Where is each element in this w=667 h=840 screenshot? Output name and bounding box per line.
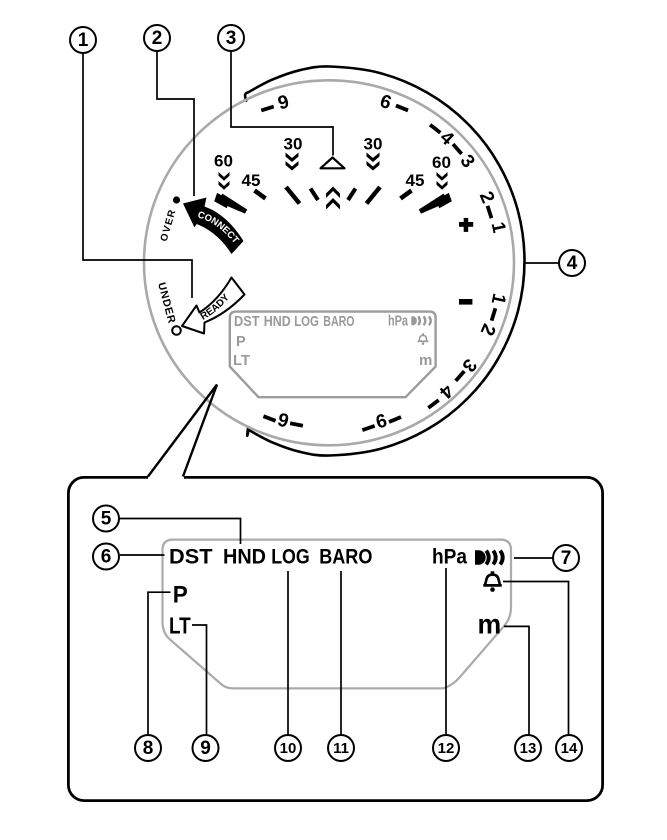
svg-text:2: 2 — [476, 321, 499, 339]
svg-text:6: 6 — [377, 91, 394, 114]
svg-text:BARO: BARO — [319, 545, 372, 569]
svg-text:6: 6 — [374, 410, 390, 433]
svg-text:11: 11 — [333, 740, 349, 757]
svg-text:hPa: hPa — [388, 314, 409, 330]
svg-text:UNDER: UNDER — [155, 281, 178, 325]
svg-text:LOG: LOG — [271, 545, 310, 569]
svg-text:30: 30 — [364, 135, 383, 154]
svg-text:7: 7 — [561, 548, 572, 569]
svg-text:DST: DST — [169, 545, 213, 569]
svg-text:30: 30 — [284, 135, 303, 154]
svg-text:2: 2 — [475, 189, 498, 207]
svg-text:10: 10 — [280, 740, 297, 757]
svg-text:45: 45 — [242, 171, 261, 190]
svg-text:HND: HND — [264, 313, 291, 330]
svg-text:12: 12 — [438, 740, 455, 757]
svg-text:14: 14 — [561, 740, 578, 757]
svg-text:9: 9 — [276, 91, 292, 114]
svg-text:4: 4 — [567, 253, 578, 274]
svg-text:LT: LT — [169, 613, 191, 639]
svg-text:m: m — [419, 352, 432, 369]
svg-text:8: 8 — [143, 738, 154, 759]
svg-text:HND: HND — [223, 545, 266, 569]
svg-text:P: P — [236, 334, 246, 350]
svg-text:LT: LT — [233, 353, 250, 369]
svg-text:P: P — [173, 582, 188, 609]
svg-text:6: 6 — [101, 547, 112, 568]
svg-text:3: 3 — [226, 28, 237, 49]
svg-text:BARO: BARO — [323, 313, 354, 330]
svg-text:13: 13 — [520, 740, 537, 757]
svg-text:hPa: hPa — [432, 545, 468, 569]
svg-text:LOG: LOG — [294, 313, 319, 330]
svg-text:60: 60 — [432, 153, 451, 172]
svg-text:60: 60 — [214, 152, 233, 171]
svg-text:1: 1 — [487, 220, 510, 235]
svg-text:5: 5 — [101, 509, 112, 530]
svg-text:1: 1 — [487, 291, 510, 306]
svg-text:9: 9 — [200, 738, 211, 759]
svg-text:45: 45 — [406, 171, 425, 190]
svg-text:9: 9 — [275, 409, 291, 432]
svg-text:OVER: OVER — [159, 208, 179, 243]
svg-text:1: 1 — [78, 30, 89, 51]
svg-text:4: 4 — [435, 380, 457, 403]
svg-text:2: 2 — [152, 28, 163, 49]
svg-text:3: 3 — [455, 151, 478, 172]
svg-text:DST: DST — [234, 313, 260, 330]
svg-text:m: m — [478, 609, 502, 640]
